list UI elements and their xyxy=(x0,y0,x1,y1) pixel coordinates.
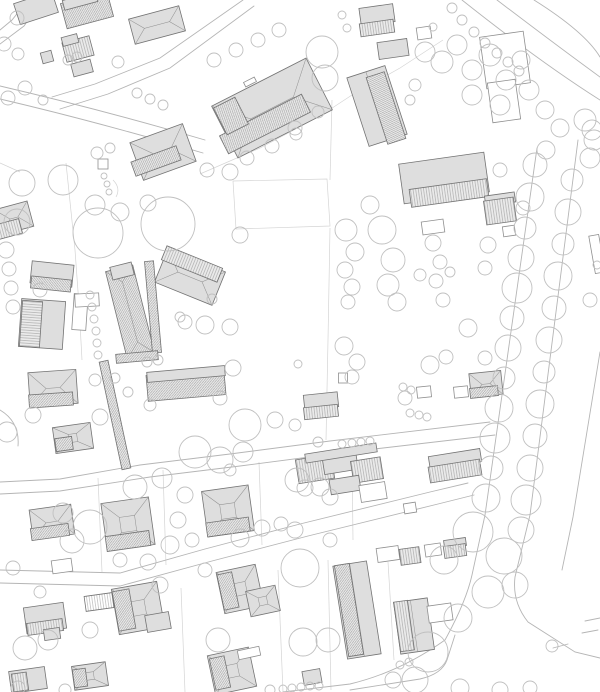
building xyxy=(376,546,400,563)
building-footprint xyxy=(98,159,108,169)
building-footprint xyxy=(424,543,442,557)
building xyxy=(453,386,468,398)
building-footprint xyxy=(427,603,453,623)
building xyxy=(55,436,74,451)
building-footprint xyxy=(40,50,53,63)
building xyxy=(483,197,516,225)
building-footprint xyxy=(55,436,74,451)
building xyxy=(145,612,172,633)
building-footprint xyxy=(51,558,73,574)
building xyxy=(40,50,53,63)
building xyxy=(72,668,87,688)
building xyxy=(377,38,409,59)
building-footprint xyxy=(246,585,281,617)
building xyxy=(19,300,42,347)
building-footprint xyxy=(29,392,74,408)
building xyxy=(51,558,73,574)
building-footprint xyxy=(416,386,431,398)
building-footprint xyxy=(72,668,87,688)
building xyxy=(487,79,520,123)
building xyxy=(359,482,387,503)
building xyxy=(421,219,445,235)
building-footprint xyxy=(145,612,172,633)
building-footprint xyxy=(377,38,409,59)
building-footprint xyxy=(403,502,416,514)
building xyxy=(29,392,74,408)
building xyxy=(246,585,281,617)
building-footprint xyxy=(487,79,520,123)
building xyxy=(416,386,431,398)
building xyxy=(399,547,421,566)
building xyxy=(403,502,416,514)
building-footprint xyxy=(480,31,531,89)
building-footprint xyxy=(399,547,421,566)
building xyxy=(480,31,531,89)
building-footprint xyxy=(376,546,400,563)
building-footprint xyxy=(359,482,387,503)
building-footprint xyxy=(19,300,42,347)
building xyxy=(424,543,442,557)
building-footprint xyxy=(483,197,516,225)
site-plan-map[interactable] xyxy=(0,0,600,692)
site-plan-canvas[interactable] xyxy=(0,0,600,692)
building-footprint xyxy=(453,386,468,398)
building-footprint xyxy=(421,219,445,235)
building xyxy=(427,603,453,623)
building xyxy=(98,159,108,169)
